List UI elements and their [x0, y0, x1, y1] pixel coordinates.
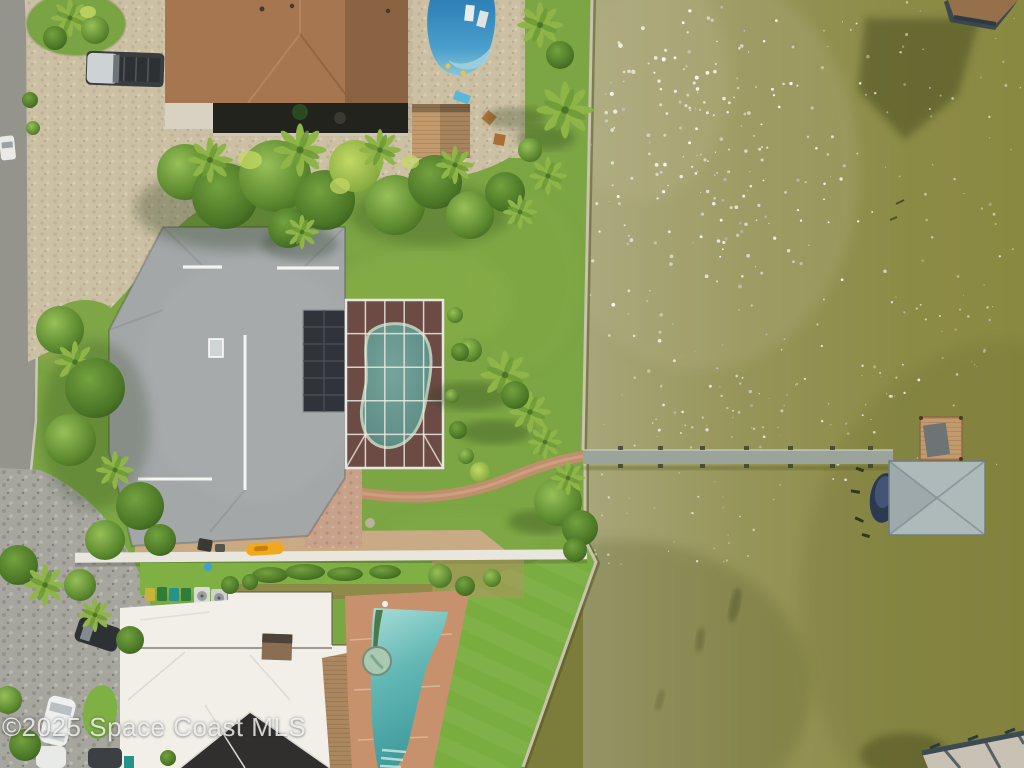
- utility-lid: [365, 518, 375, 528]
- screened-pool-enclosure: [346, 300, 443, 468]
- lanai-shadow: [213, 103, 413, 134]
- pool-ladder: [382, 601, 388, 607]
- teal-bin: [124, 756, 134, 768]
- mls-watermark: ©2025 Space Coast MLS: [2, 712, 306, 743]
- dock-sun-platform: [919, 416, 963, 461]
- neighbor-pool-area: [408, 0, 525, 158]
- pool-toy: [204, 563, 212, 571]
- white-car-partial: [36, 746, 66, 768]
- solar-panels: [303, 310, 345, 412]
- grill: [197, 538, 213, 552]
- pool-lounger: [464, 5, 475, 22]
- side-wall: [165, 103, 213, 129]
- yard-item: [215, 544, 225, 552]
- neighbor-house-top: [165, 0, 413, 136]
- skylight: [209, 339, 223, 357]
- aerial-photo: ©2025 Space Coast MLS: [0, 0, 1024, 768]
- aerial-photo-canvas: [0, 0, 1024, 768]
- pickup-truck: [85, 51, 164, 88]
- patio-chair: [493, 133, 506, 146]
- dark-car-partial: [88, 748, 122, 768]
- dock-walkway: [583, 450, 893, 464]
